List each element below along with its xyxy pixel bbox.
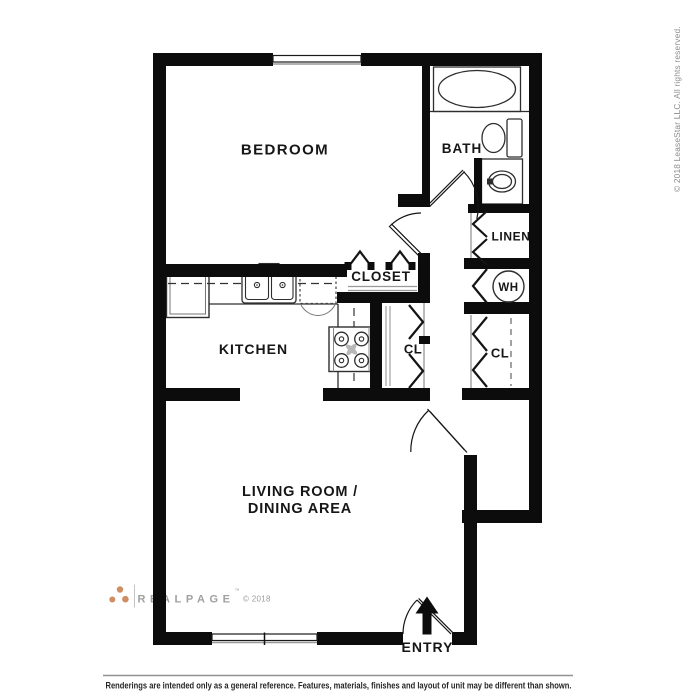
wall-top-left: [153, 53, 273, 66]
wall-bedroom-bottom: [153, 264, 347, 277]
wall-kitchen-bottom-b: [323, 388, 430, 401]
doors: [345, 170, 512, 635]
cl-left-label: CL: [404, 342, 422, 357]
vanity-sink-icon: [482, 159, 523, 204]
bathtub-icon: [430, 67, 529, 112]
wall-right-upper: [529, 53, 542, 523]
floor-plan-page: REALPAGE ™ © 2018: [0, 0, 697, 697]
bedroom-label: BEDROOM: [241, 142, 329, 159]
closet-label: CLOSET: [351, 269, 411, 284]
logo-copyright: © 2018: [243, 595, 271, 604]
bath-label: BATH: [442, 141, 483, 156]
window-living-icon: [212, 633, 317, 646]
wall-left-cl: [370, 292, 382, 398]
cl-right-label: CL: [491, 346, 509, 361]
side-copyright-note: © 2018 LeaseStar LLC. All rights reserve…: [672, 26, 682, 192]
wall-kitchen-bottom-a: [153, 388, 240, 401]
kitchen-label: KITCHEN: [219, 341, 288, 357]
wall-linen-bottom: [464, 258, 529, 269]
wall-left: [153, 53, 166, 645]
linen-label: LINEN: [492, 230, 531, 244]
wall-cl-bottom: [462, 388, 542, 400]
living-label-line2: DINING AREA: [248, 501, 352, 517]
wh-bifold-door-icon: [473, 269, 487, 303]
wall-bottom-a: [153, 632, 212, 645]
logo-dot-icon: [122, 596, 129, 603]
entry-label: ENTRY: [402, 639, 454, 655]
entry-arrow-shaft: [423, 614, 432, 635]
wh-label: WH: [498, 282, 518, 294]
living-label-line1: LIVING ROOM /: [242, 484, 358, 500]
bedroom-door-swing-icon: [389, 213, 422, 257]
footer: Renderings are intended only as a genera…: [103, 676, 573, 691]
wall-nook-bottom: [462, 510, 542, 523]
fixtures: [167, 67, 530, 388]
floor-plan: REALPAGE ™ © 2018: [0, 0, 697, 697]
wall-bath-door-stub: [398, 194, 430, 207]
stove-icon: [329, 327, 374, 372]
logo-wordmark: REALPAGE: [138, 594, 235, 606]
window-bedroom-icon: [273, 56, 361, 65]
footer-disclaimer: Renderings are intended only as a genera…: [106, 681, 572, 691]
logo-tm: ™: [235, 588, 240, 594]
wall-bath-left: [422, 53, 430, 196]
entry-door-swing-icon: [403, 597, 453, 635]
wall-living-right: [464, 455, 477, 645]
wall-top-right: [361, 53, 542, 66]
realpage-logo: REALPAGE ™ © 2018: [109, 585, 271, 608]
hall-door-swing-icon: [411, 409, 467, 453]
toilet-icon: [482, 119, 522, 157]
wall-closet-bottom: [337, 292, 430, 303]
logo-dot-icon: [109, 597, 115, 603]
wall-bottom-c: [452, 632, 477, 645]
wall-bottom-b: [317, 632, 403, 645]
logo-dot-icon: [117, 586, 123, 592]
wall-vanity-bottom: [468, 204, 529, 213]
wall-wh-bottom: [464, 302, 529, 314]
linen-bifold-door-icon: [471, 211, 487, 265]
